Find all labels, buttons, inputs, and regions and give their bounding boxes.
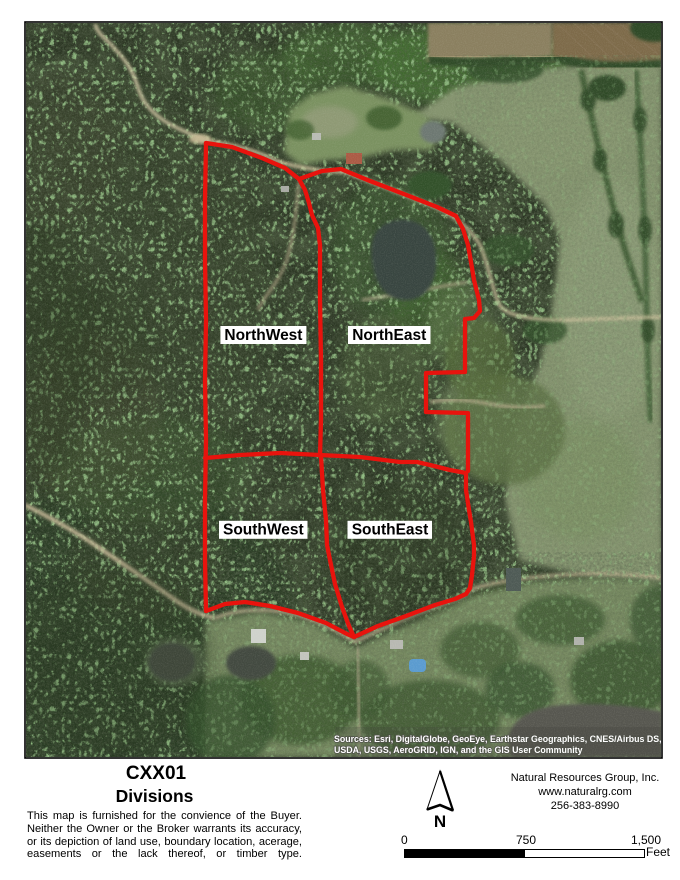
svg-text:SouthEast: SouthEast — [352, 522, 429, 539]
svg-text:NorthEast: NorthEast — [352, 327, 426, 344]
svg-text:Sources: Esri, DigitalGlobe, G: Sources: Esri, DigitalGlobe, GeoEye, Ear… — [334, 734, 662, 744]
svg-text:USDA, USGS, AeroGRID, IGN, and: USDA, USGS, AeroGRID, IGN, and the GIS U… — [334, 745, 583, 755]
svg-text:SouthWest: SouthWest — [223, 522, 304, 539]
svg-text:NorthWest: NorthWest — [224, 327, 302, 344]
